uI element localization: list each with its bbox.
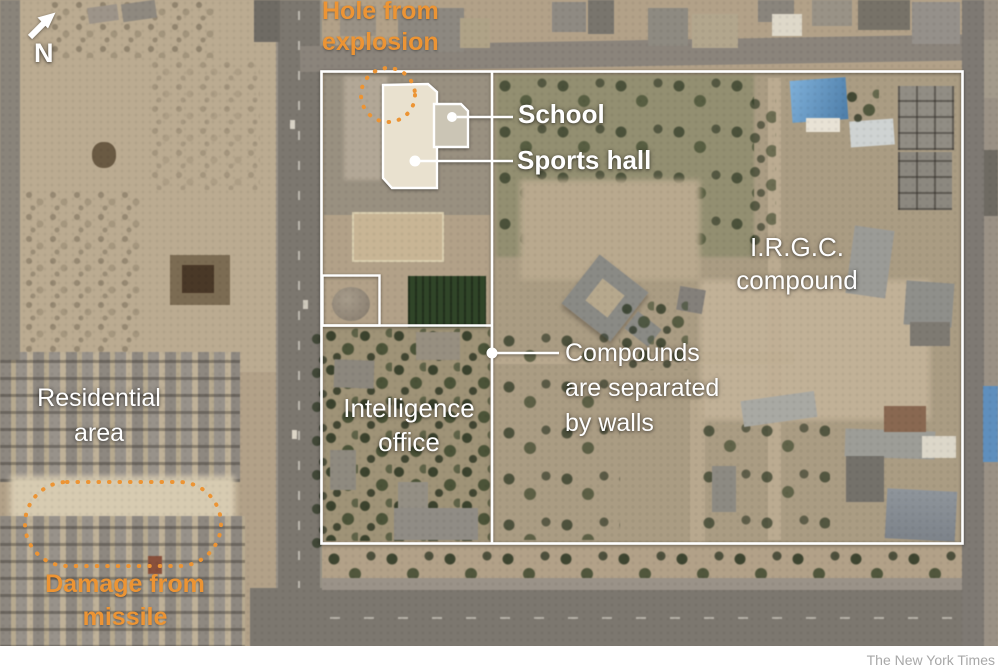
label-line: by walls	[565, 406, 719, 441]
label-line: Intelligence	[329, 391, 489, 425]
label-hole-from-explosion: Hole from explosion	[322, 0, 439, 58]
label-line: Residential	[20, 381, 178, 416]
label-compounds-separated: Compounds are separated by walls	[565, 336, 719, 441]
annotated-satellite-figure: N Hole from explosion School Sports hall…	[0, 0, 998, 665]
label-intelligence-office: Intelligence office	[329, 391, 489, 459]
label-damage-from-missile: Damage from missile	[30, 568, 220, 634]
label-line: are separated	[565, 371, 719, 406]
label-line: I.R.G.C.	[714, 231, 880, 264]
source-credit: The New York Times	[867, 652, 995, 665]
label-residential-area: Residential area	[20, 381, 178, 451]
label-line: missile	[30, 601, 220, 634]
satellite-basemap	[0, 0, 998, 648]
label-line: Compounds	[565, 336, 719, 371]
grain-overlay	[0, 0, 998, 648]
label-line: Hole from	[322, 0, 439, 27]
label-school: School	[518, 99, 605, 130]
north-label: N	[34, 38, 54, 69]
label-line: office	[329, 425, 489, 459]
label-line: area	[20, 416, 178, 451]
label-line: Damage from	[30, 568, 220, 601]
credit-bar: The New York Times	[0, 646, 998, 665]
label-line: explosion	[322, 27, 439, 58]
label-line: compound	[714, 264, 880, 297]
label-sports-hall: Sports hall	[517, 145, 651, 176]
satellite-image: N Hole from explosion School Sports hall…	[0, 0, 998, 648]
label-irgc-compound: I.R.G.C. compound	[714, 231, 880, 297]
